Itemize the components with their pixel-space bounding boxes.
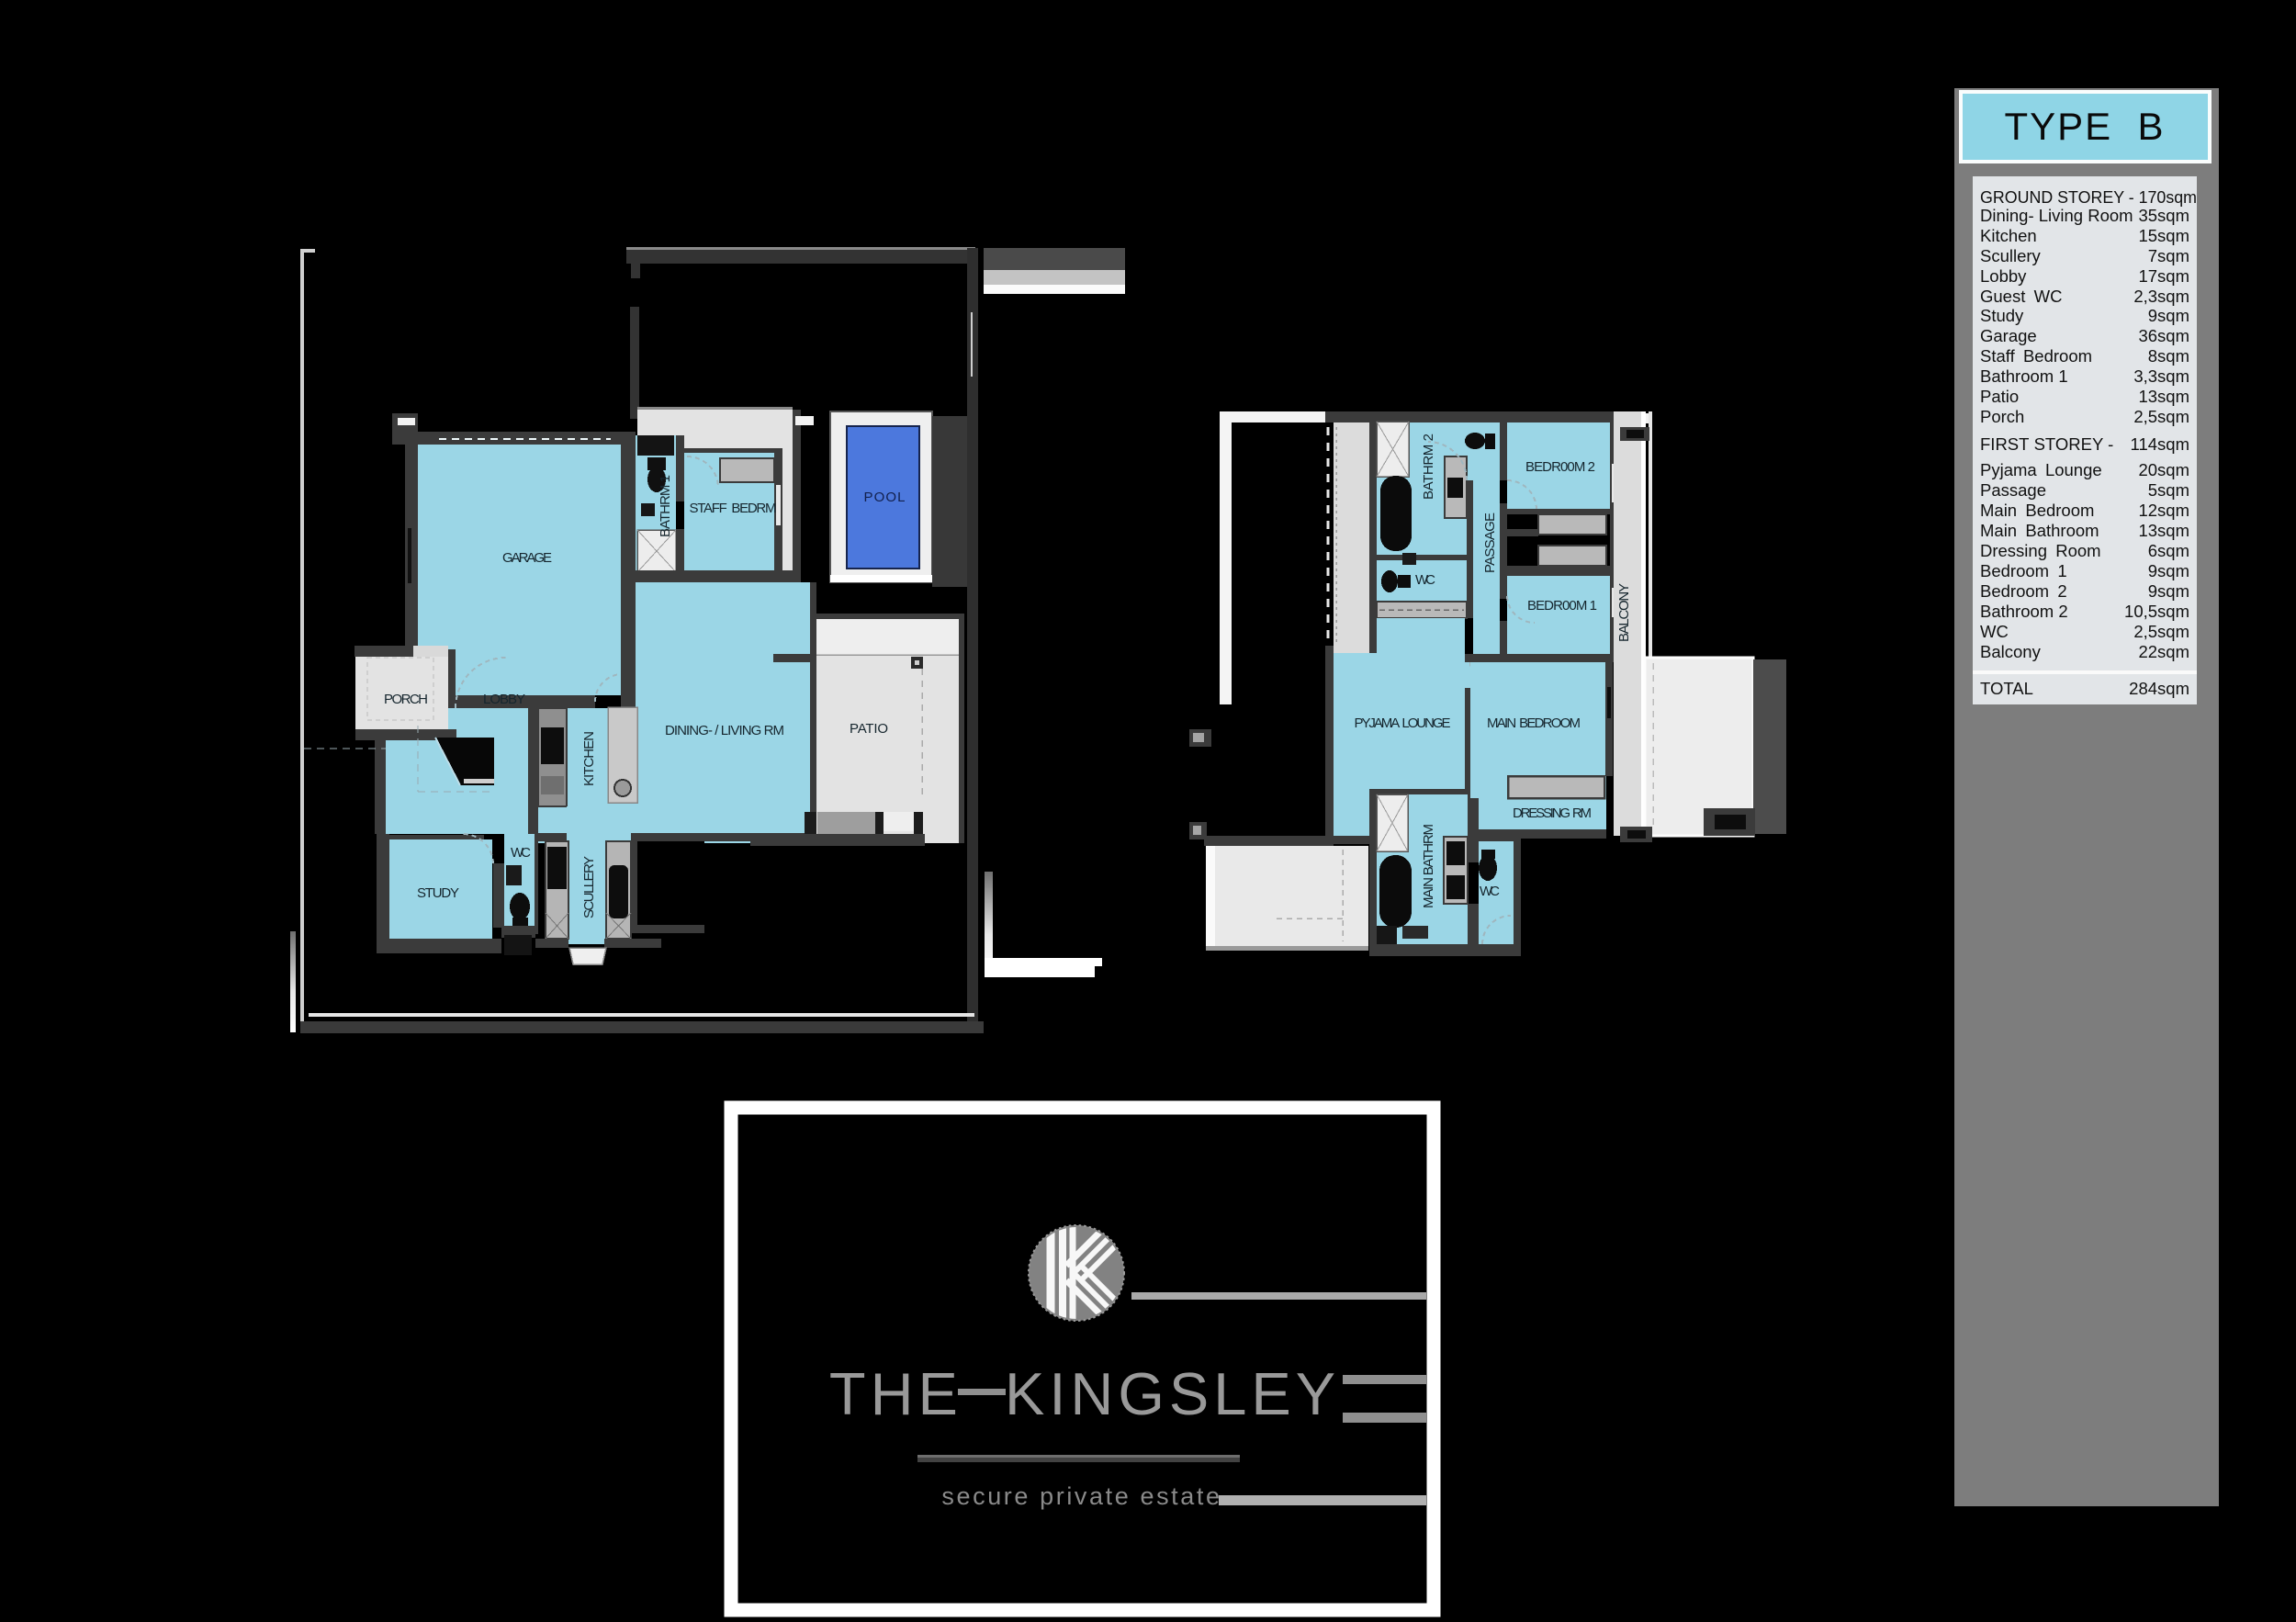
svg-text:Porch: Porch — [1980, 407, 2024, 426]
svg-text:GROUND STOREY - 170sqm: GROUND STOREY - 170sqm — [1980, 187, 2197, 207]
svg-text:TYPE B: TYPE B — [2004, 105, 2165, 148]
svg-text:Main Bathroom: Main Bathroom — [1980, 521, 2099, 540]
svg-text:MAIN BATHRM: MAIN BATHRM — [1421, 824, 1436, 908]
svg-text:Staff Bedroom: Staff Bedroom — [1980, 346, 2092, 366]
svg-text:Main Bedroom: Main Bedroom — [1980, 501, 2094, 520]
svg-text:2,3sqm: 2,3sqm — [2133, 287, 2189, 306]
svg-text:Bathroom 1: Bathroom 1 — [1980, 366, 2068, 386]
svg-text:Pyjama Lounge: Pyjama Lounge — [1980, 460, 2102, 479]
svg-text:TOTAL: TOTAL — [1980, 679, 2033, 698]
svg-text:5sqm: 5sqm — [2148, 480, 2189, 500]
svg-text:284sqm: 284sqm — [2129, 679, 2189, 698]
svg-text:DRESSING RM: DRESSING RM — [1513, 805, 1592, 821]
svg-text:9sqm: 9sqm — [2148, 581, 2189, 601]
svg-text:12sqm: 12sqm — [2138, 501, 2189, 520]
svg-text:9sqm: 9sqm — [2148, 306, 2189, 325]
svg-text:Bedroom 1: Bedroom 1 — [1980, 561, 2067, 580]
svg-text:36sqm: 36sqm — [2138, 326, 2189, 345]
svg-text:PYJAMA LOUNGE: PYJAMA LOUNGE — [1355, 715, 1451, 731]
svg-text:STAFF BEDRM: STAFF BEDRM — [690, 501, 777, 516]
svg-text:20sqm: 20sqm — [2138, 460, 2189, 479]
svg-text:3,3sqm: 3,3sqm — [2133, 366, 2189, 386]
svg-text:KITCHEN: KITCHEN — [581, 731, 597, 786]
svg-text:LOBBY: LOBBY — [483, 692, 525, 707]
svg-text:BATHRM 2: BATHRM 2 — [1421, 434, 1436, 500]
svg-text:SCULLERY: SCULLERY — [581, 856, 597, 918]
svg-text:PASSAGE: PASSAGE — [1482, 513, 1498, 573]
svg-text:Study: Study — [1980, 306, 2024, 325]
svg-text:2,5sqm: 2,5sqm — [2133, 407, 2189, 426]
svg-text:GARAGE: GARAGE — [502, 550, 552, 566]
svg-text:BALCONY: BALCONY — [1616, 583, 1632, 642]
svg-text:BEDR00M 1: BEDR00M 1 — [1527, 598, 1597, 614]
svg-text:Guest WC: Guest WC — [1980, 287, 2062, 306]
svg-text:13sqm: 13sqm — [2138, 521, 2189, 540]
svg-text:WC: WC — [1415, 572, 1435, 588]
svg-text:WC: WC — [511, 845, 531, 861]
svg-text:Patio: Patio — [1980, 387, 2019, 406]
svg-text:6sqm: 6sqm — [2148, 541, 2189, 560]
svg-text:BATHRM 1: BATHRM 1 — [658, 475, 673, 537]
svg-text:Dressing Room: Dressing Room — [1980, 541, 2101, 560]
svg-text:MAIN BEDROOM: MAIN BEDROOM — [1487, 715, 1581, 731]
svg-text:2,5sqm: 2,5sqm — [2133, 622, 2189, 641]
svg-text:WC: WC — [1480, 884, 1500, 899]
svg-text:10,5sqm: 10,5sqm — [2124, 602, 2189, 621]
svg-text:WC: WC — [1980, 622, 2009, 641]
svg-text:114sqm: 114sqm — [2131, 434, 2189, 454]
svg-text:Garage: Garage — [1980, 326, 2037, 345]
svg-text:Dining- Living Room: Dining- Living Room — [1980, 206, 2133, 225]
svg-text:Balcony: Balcony — [1980, 642, 2042, 661]
svg-text:7sqm: 7sqm — [2148, 246, 2189, 265]
svg-text:Scullery: Scullery — [1980, 246, 2042, 265]
svg-text:17sqm: 17sqm — [2138, 266, 2189, 286]
svg-text:Lobby: Lobby — [1980, 266, 2027, 286]
svg-text:STUDY: STUDY — [417, 885, 459, 901]
svg-text:POOL: POOL — [864, 490, 906, 505]
svg-text:Bathroom 2: Bathroom 2 — [1980, 602, 2068, 621]
svg-text:PORCH: PORCH — [384, 692, 428, 707]
svg-text:Passage: Passage — [1980, 480, 2046, 500]
svg-text:13sqm: 13sqm — [2138, 387, 2189, 406]
svg-text:Bedroom 2: Bedroom 2 — [1980, 581, 2067, 601]
svg-text:22sqm: 22sqm — [2138, 642, 2189, 661]
svg-text:9sqm: 9sqm — [2148, 561, 2189, 580]
svg-text:THE KINGSLEY: THE KINGSLEY — [829, 1360, 1340, 1427]
svg-text:PATIO: PATIO — [850, 721, 888, 737]
svg-text:15sqm: 15sqm — [2138, 226, 2189, 245]
svg-text:FIRST STOREY -: FIRST STOREY - — [1980, 434, 2113, 454]
svg-text:secure private estate: secure private estate — [941, 1482, 1221, 1510]
svg-text:35sqm: 35sqm — [2138, 206, 2189, 225]
svg-text:DINING- / LIVING RM: DINING- / LIVING RM — [665, 723, 784, 738]
svg-text:Kitchen: Kitchen — [1980, 226, 2037, 245]
svg-text:8sqm: 8sqm — [2148, 346, 2189, 366]
svg-text:BEDR00M 2: BEDR00M 2 — [1525, 459, 1595, 475]
